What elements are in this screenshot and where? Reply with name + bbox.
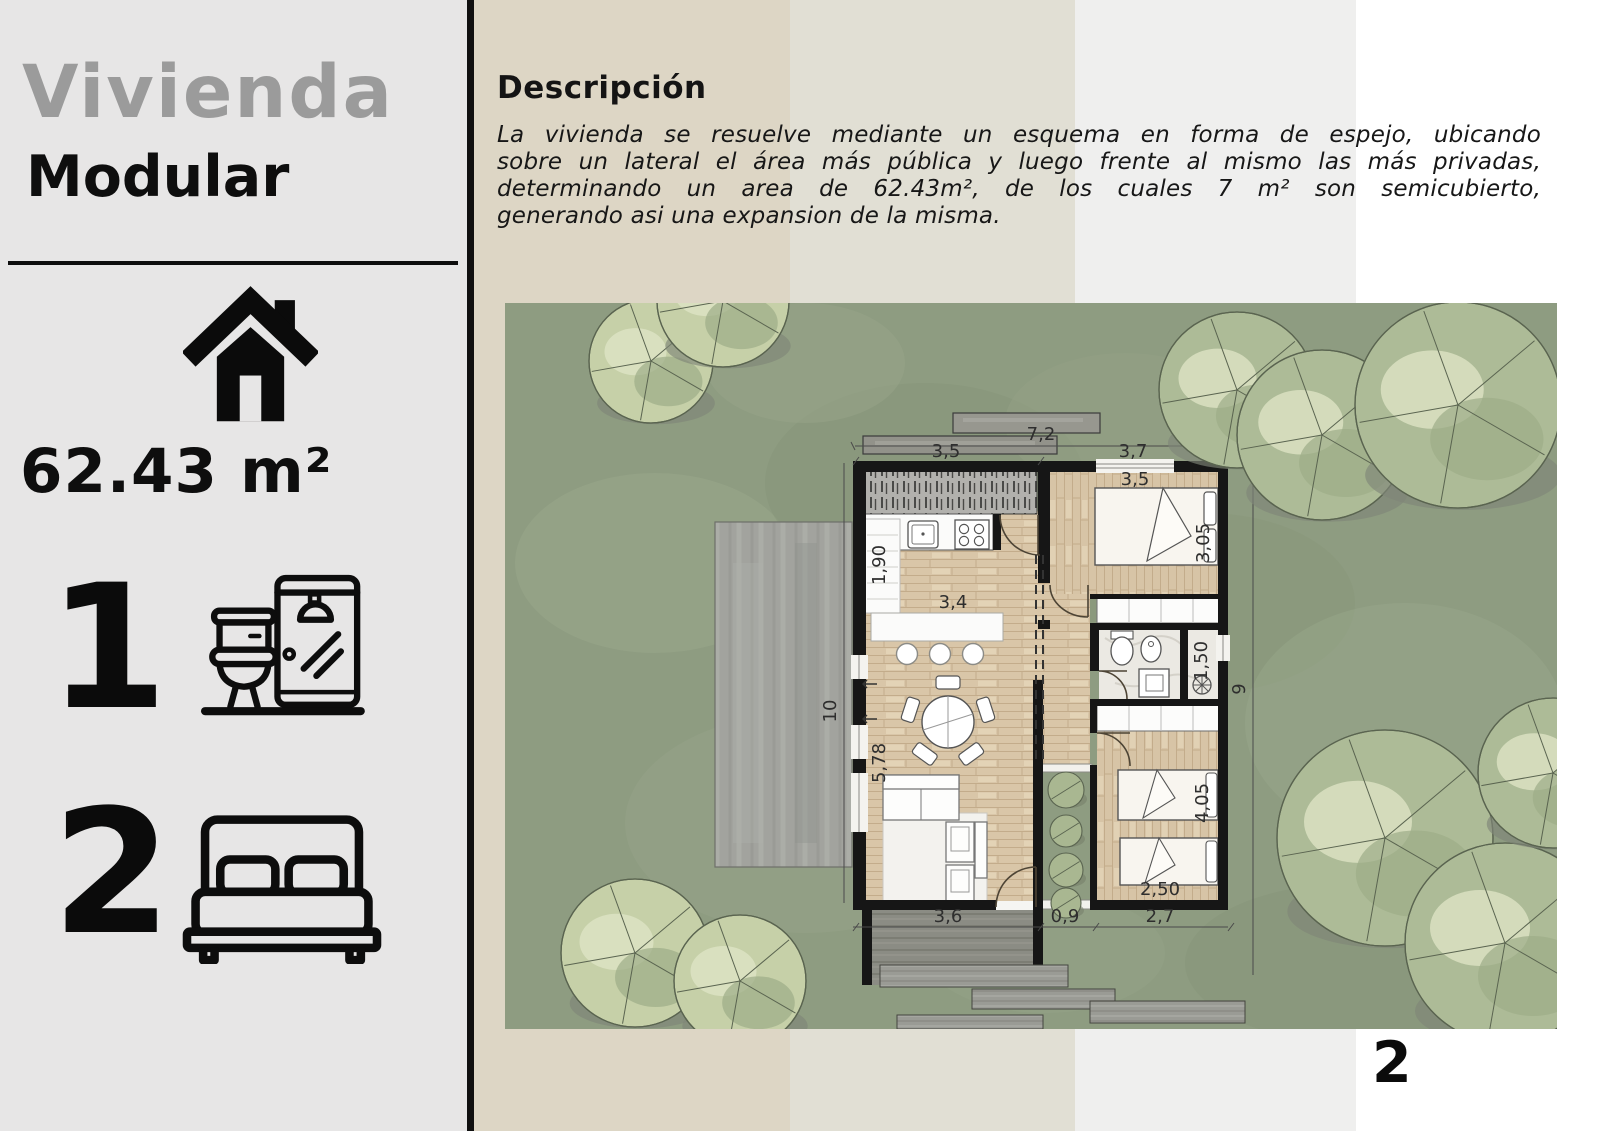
panel-divider [467,0,474,1131]
inner-patio [1041,764,1092,918]
dim-label: 2,7 [1146,906,1175,927]
dim-label: 3,5 [932,441,961,462]
page-number: 2 [1372,1030,1412,1096]
dim-label: 3,5 [1121,469,1150,490]
dim-label: 3,4 [939,592,968,613]
dim-label: 1,50 [1191,641,1212,681]
dim-label: 2,50 [1140,879,1180,900]
dim-label: 3,7 [1119,441,1148,462]
dim-label: 3,6 [934,906,963,927]
separator-line [8,261,458,265]
presentation-board: Vivienda Modular 62.43 m² 1 [0,0,1600,1131]
project-subtitle: Modular [26,144,289,210]
bedrooms-count: 2 [52,800,172,946]
dim-label: 4,05 [1192,783,1213,823]
dim-label: 5,78 [869,743,890,783]
dim-label: 0,9 [1051,906,1080,927]
concrete-deck [715,522,852,867]
floor-plan-image: 7,2 3,5 3,7 3,5 3,4 1,90 3,05 1,50 10 9 … [505,303,1557,1029]
house-icon [183,284,318,424]
dim-label: 1,90 [869,545,890,585]
dim-label: 9 [1229,683,1250,694]
bathrooms-count: 1 [48,575,168,721]
semicovered-strip [865,468,1037,514]
description-block: Descripción La vivienda se resuelve medi… [497,70,1541,230]
double-bed-icon [178,812,386,964]
dim-label: 10 [820,700,841,723]
description-line: La vivienda se resuelve mediante un esqu… [497,122,1541,149]
description-heading: Descripción [497,70,1541,106]
project-title: Vivienda [22,50,394,135]
area-value: 62.43 m² [20,436,332,507]
dim-label: 3,05 [1193,523,1214,563]
description-line: sobre un lateral el área más pública y l… [497,149,1541,176]
toilet-shower-icon [196,560,368,732]
description-line: generando asi una expansion de la misma. [497,203,1541,230]
description-line: determinando un area de 62.43m², de los … [497,176,1541,203]
dim-label: 7,2 [1027,424,1056,445]
